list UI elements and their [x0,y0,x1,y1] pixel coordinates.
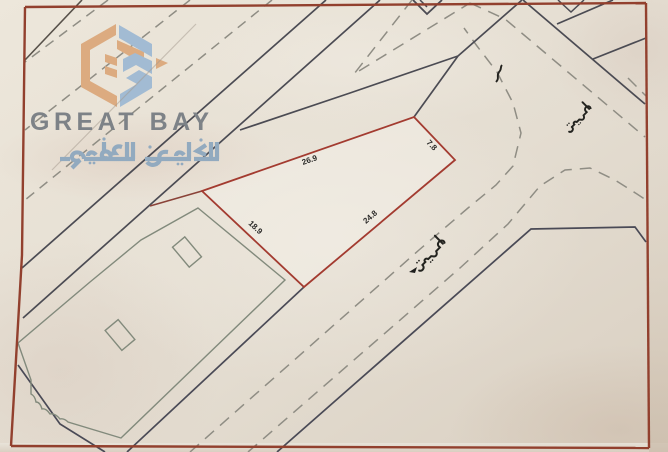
svg-text:GREAT BAY: GREAT BAY [30,108,214,136]
